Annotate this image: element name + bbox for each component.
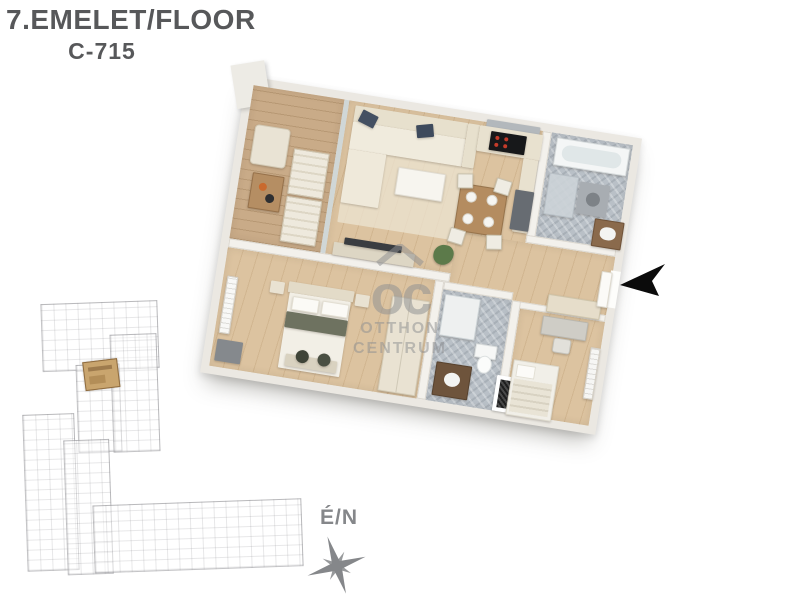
building-wing <box>92 498 303 573</box>
balcony-table <box>247 172 284 213</box>
dining-chair <box>486 235 502 250</box>
building-wing <box>109 333 160 453</box>
page-title: 7.EMELET/FLOOR <box>6 4 218 36</box>
balcony-armchair <box>249 124 291 169</box>
unit-location-highlight <box>82 358 120 391</box>
bathroom-vanity <box>591 218 625 250</box>
desk-chair <box>552 337 572 355</box>
nightstand-2 <box>354 294 370 308</box>
dining-chair <box>457 173 473 188</box>
compass-label: É/N <box>306 506 372 530</box>
unit-code: C-715 <box>6 38 198 65</box>
header: 7.EMELET/FLOOR C-715 <box>6 4 218 65</box>
shower-room-vanity <box>431 361 472 400</box>
entrance-arrow-icon <box>618 260 668 300</box>
single-bed <box>505 359 559 422</box>
sofa-pillow-2 <box>416 124 434 138</box>
compass-rose-icon <box>303 532 371 600</box>
washing-machine <box>576 181 611 217</box>
shower-tray <box>439 294 481 341</box>
building-key-plan <box>15 287 310 585</box>
balcony-lounge-chair-2 <box>280 196 323 247</box>
balcony-lounge-chair <box>287 148 330 199</box>
